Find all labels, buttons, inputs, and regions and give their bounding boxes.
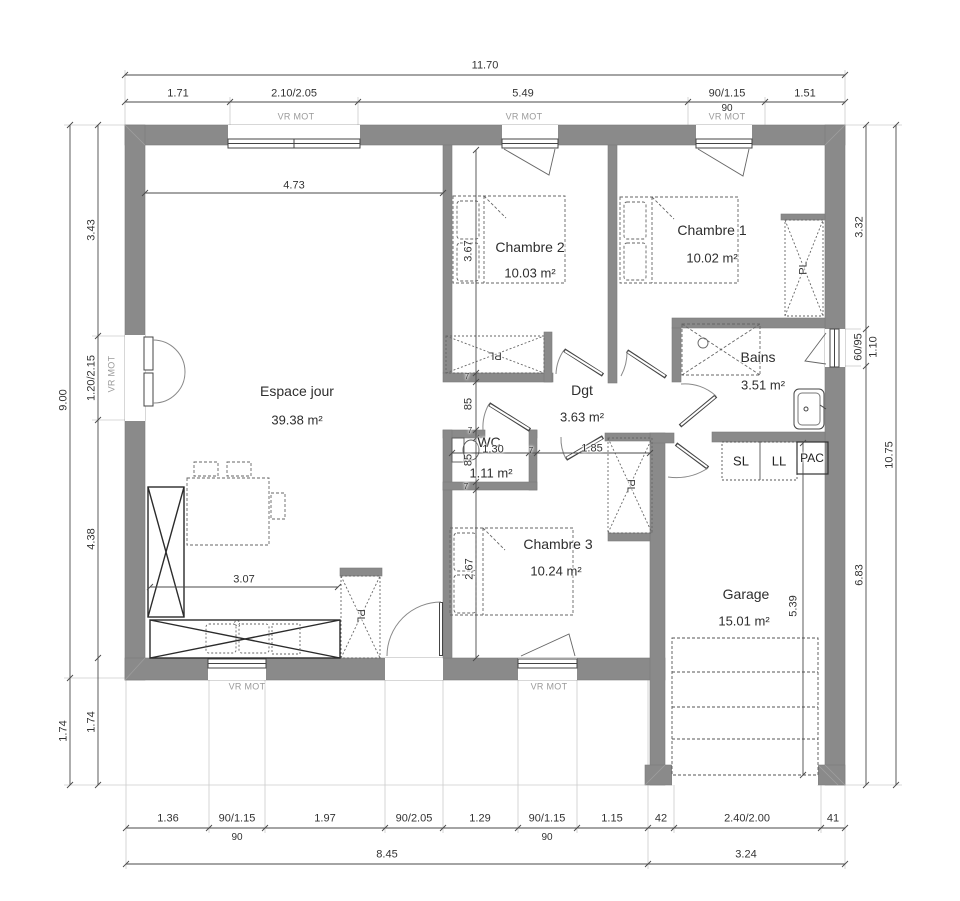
dim-right-inner: 3.32 <box>855 216 866 237</box>
room-area-chambre-3: 10.24 m² <box>530 565 581 578</box>
closet-label-chambre-1: PL <box>799 261 810 274</box>
door-chambre-1 <box>621 351 666 377</box>
dim-bottom-total: 3.24 <box>735 850 756 861</box>
window-espace-jour <box>228 139 360 148</box>
window-motor-label: VR MOT <box>108 356 117 393</box>
swing-window-bains <box>805 333 826 364</box>
dim-chambre2-height: 3.67 <box>464 240 475 261</box>
door-wc <box>483 404 530 430</box>
room-label-chambre-1: Chambre 1 <box>677 223 746 237</box>
washbasin <box>794 389 826 429</box>
dim-left-outer: 9.00 <box>59 389 70 410</box>
dim-right-inner: 6.83 <box>855 564 866 585</box>
dim-wc-width: 1.30 <box>482 445 503 456</box>
dim-bottom-segment: 41 <box>827 814 839 825</box>
dim-espace-top: 4.73 <box>283 181 304 192</box>
room-label-dgt: Dgt <box>571 383 593 397</box>
room-area-chambre-2: 10.03 m² <box>504 267 555 280</box>
room-label-garage: Garage <box>723 587 770 601</box>
room-label-espace-jour: Espace jour <box>260 384 334 398</box>
window-kitchen <box>208 659 266 668</box>
swing-window-chambre-1 <box>698 149 749 176</box>
heatpump-label: PAC <box>800 452 824 464</box>
closet-label-kitchen: PL <box>355 609 366 622</box>
dim-hall: 1.85 <box>581 444 602 455</box>
french-door-espace-jour <box>144 337 185 406</box>
dim-right-inner: 1.10 <box>869 336 880 357</box>
dining-table <box>187 462 285 545</box>
dim-top-segment: 5.49 <box>512 89 533 100</box>
window-motor-label: VR MOT <box>531 683 568 692</box>
door-garage <box>668 444 708 478</box>
window-chambre-3 <box>518 659 577 668</box>
room-label-chambre-2: Chambre 2 <box>495 240 564 254</box>
window-motor-label: VR MOT <box>506 113 543 122</box>
dim-right-inner: 60/95 <box>854 333 865 361</box>
dim-bottom-segment: 1.15 <box>601 814 622 825</box>
dim-bottom-segment: 90/2.05 <box>396 814 433 825</box>
closet-label-hall: PL <box>488 350 501 361</box>
dim-partition: 7 <box>529 447 533 455</box>
dim-partition: 7 <box>464 483 468 491</box>
door-bains <box>680 384 716 426</box>
window-motor-label: VR MOT <box>229 683 266 692</box>
dim-bottom-segment: 1.29 <box>469 814 490 825</box>
dim-passage: 85 <box>464 398 475 410</box>
dim-bottom-segment: 1.36 <box>157 814 178 825</box>
dryer-label: LL <box>772 455 786 468</box>
garage-markings <box>672 442 828 775</box>
garage-door-bay <box>672 638 818 775</box>
dim-left-inner: 4.38 <box>87 528 98 549</box>
floor-plan: Espace jour 39.38 m² Chambre 2 10.03 m² … <box>0 0 960 901</box>
doors <box>144 337 716 656</box>
dim-top-segment: 1.51 <box>794 89 815 100</box>
room-area-dgt: 3.63 m² <box>560 411 604 424</box>
room-label-chambre-3: Chambre 3 <box>523 537 592 551</box>
dim-bottom-segment: 2.40/2.00 <box>724 814 770 825</box>
room-label-bains: Bains <box>740 350 775 364</box>
dim-partition: 7 <box>468 427 472 435</box>
dim-top-total: 11.70 <box>472 61 499 72</box>
window-chambre-1 <box>696 139 752 148</box>
room-area-espace-jour: 39.38 m² <box>271 414 322 427</box>
washer-label: SL <box>733 455 749 468</box>
dim-left-inner: 1.74 <box>87 711 98 732</box>
dim-left-outer: 1.74 <box>59 720 70 741</box>
closet-label-chambre-3: PL <box>625 479 636 492</box>
dim-kitchen: 3.07 <box>233 575 254 586</box>
dim-top-segment: 90/1.15 <box>709 89 746 100</box>
dim-wc-height: 85 <box>464 454 475 466</box>
dim-garage-height: 5.39 <box>789 595 800 616</box>
window-chambre-2 <box>502 139 558 148</box>
dim-bottom-segment: 1.97 <box>314 814 335 825</box>
dim-bottom-total: 8.45 <box>376 850 397 861</box>
dim-partition: 7 <box>465 373 469 381</box>
dim-top-segment: 1.71 <box>167 89 188 100</box>
dim-top-segment: 2.10/2.05 <box>271 89 317 100</box>
dim-bottom-segment: 90/1.15 <box>219 814 256 825</box>
dim-right-outer: 10.75 <box>885 441 896 469</box>
bed-chambre-1 <box>620 197 738 283</box>
dim-top-sub: 90 <box>721 104 732 114</box>
dim-chambre3-height: 2.67 <box>465 558 476 579</box>
dim-bottom-sub: 90 <box>231 833 242 843</box>
dim-bottom-sub: 90 <box>541 833 552 843</box>
kitchen-counter <box>150 620 340 658</box>
dim-left-inner: 3.43 <box>87 219 98 240</box>
door-chambre-2 <box>556 350 603 375</box>
interior-walls <box>340 145 825 658</box>
window-bains <box>830 329 839 367</box>
room-area-chambre-1: 10.02 m² <box>686 252 737 265</box>
dim-bottom-segment: 90/1.15 <box>529 814 566 825</box>
entry-door <box>387 602 441 656</box>
room-area-garage: 15.01 m² <box>718 615 769 628</box>
dim-left-inner: 1.20/2.15 <box>87 355 98 401</box>
kitchen-tall-cabinet <box>148 487 184 617</box>
dim-bottom-segment: 42 <box>655 814 667 825</box>
swing-window-chambre-2 <box>504 149 555 175</box>
room-area-wc: 1.11 m² <box>469 467 512 480</box>
kitchen <box>148 487 340 658</box>
swing-window-chambre-3 <box>521 634 575 656</box>
room-area-bains: 3.51 m² <box>741 379 785 392</box>
window-motor-label: VR MOT <box>278 113 315 122</box>
